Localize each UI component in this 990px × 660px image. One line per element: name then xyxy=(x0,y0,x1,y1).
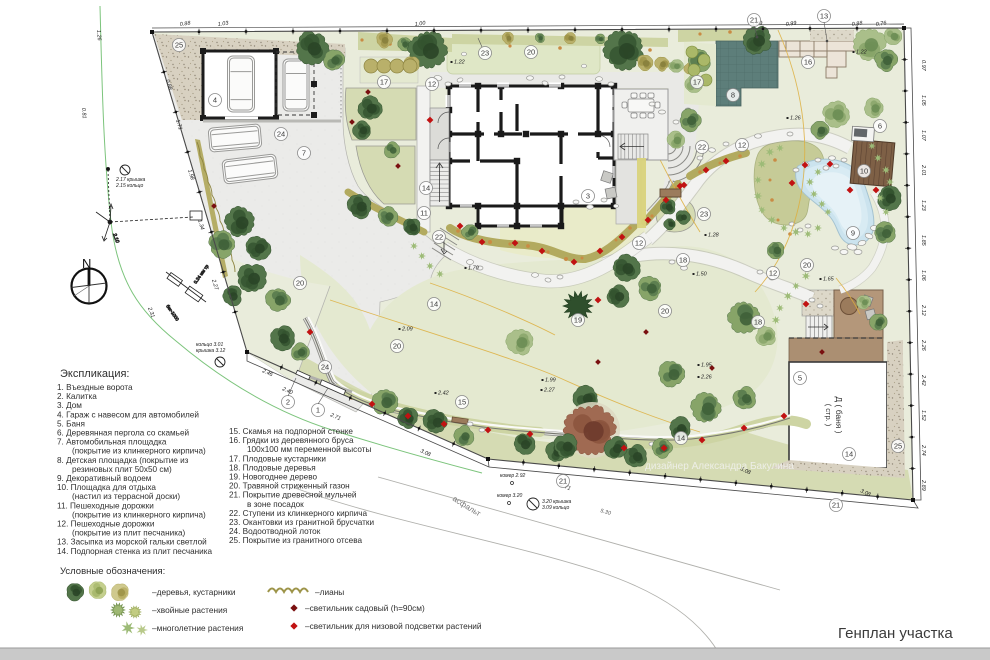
svg-text:2.42: 2.42 xyxy=(920,374,926,386)
svg-text:14: 14 xyxy=(845,450,853,459)
svg-text:15. Скамья на подпорной стенке: 15. Скамья на подпорной стенке xyxy=(229,427,353,436)
svg-text:15: 15 xyxy=(458,398,466,407)
svg-text:25. Покрытие из гранитного отс: 25. Покрытие из гранитного отсева xyxy=(229,536,362,545)
svg-text:21: 21 xyxy=(750,16,758,25)
svg-text:1. Въездные ворота: 1. Въездные ворота xyxy=(57,383,133,392)
svg-text:2.15 кольцо: 2.15 кольцо xyxy=(115,183,143,189)
svg-text:18. Плодовые деревья: 18. Плодовые деревья xyxy=(229,463,316,472)
svg-text:7. Автомобильная площадка: 7. Автомобильная площадка xyxy=(57,438,167,447)
svg-text:11. Пешеходные дорожки: 11. Пешеходные дорожки xyxy=(57,501,154,510)
svg-text:–светильник садовый (h=90см): –светильник садовый (h=90см) xyxy=(305,603,425,613)
svg-text:17: 17 xyxy=(380,78,388,87)
svg-text:1.26: 1.26 xyxy=(790,116,802,122)
svg-text:2. Калитка: 2. Калитка xyxy=(57,392,97,401)
svg-text:10: 10 xyxy=(860,167,868,176)
svg-text:Генплан участка: Генплан участка xyxy=(838,625,953,642)
svg-text:8. Детская площадка (покрытие: 8. Детская площадка (покрытие из xyxy=(57,456,189,465)
svg-text:2.89: 2.89 xyxy=(920,479,926,491)
svg-text:24. Водоотводной лоток: 24. Водоотводной лоток xyxy=(229,527,321,536)
svg-text:1.65: 1.65 xyxy=(823,277,835,283)
svg-text:в зоне посадок: в зоне посадок xyxy=(247,500,304,509)
svg-text:1.05: 1.05 xyxy=(920,95,926,107)
svg-text:–лианы: –лианы xyxy=(315,587,344,597)
svg-text:Условные обозначения:: Условные обозначения: xyxy=(60,566,165,577)
svg-text:2.09: 2.09 xyxy=(401,327,413,333)
svg-text:14: 14 xyxy=(430,300,438,309)
svg-text:3. Дом: 3. Дом xyxy=(57,401,82,410)
svg-text:21: 21 xyxy=(559,477,567,486)
svg-text:(настил из террасной доски): (настил из террасной доски) xyxy=(72,492,180,501)
svg-text:1.23: 1.23 xyxy=(920,200,926,212)
svg-text:17: 17 xyxy=(693,78,701,87)
svg-text:крышка 3.12: крышка 3.12 xyxy=(196,348,225,354)
svg-text:0.81: 0.81 xyxy=(80,108,87,119)
svg-text:9. Декоративный водоем: 9. Декоративный водоем xyxy=(57,474,152,483)
svg-text:(покрытие из клинкерного кирпи: (покрытие из клинкерного кирпича) xyxy=(72,510,206,519)
svg-text:20: 20 xyxy=(661,307,669,316)
svg-text:1.22: 1.22 xyxy=(856,50,867,56)
svg-text:( стр. ): ( стр. ) xyxy=(824,404,833,427)
svg-text:2: 2 xyxy=(286,398,290,407)
svg-text:23: 23 xyxy=(481,49,489,58)
svg-text:–многолетние растения: –многолетние растения xyxy=(152,623,243,633)
svg-text:1.07: 1.07 xyxy=(920,130,926,142)
svg-text:(покрытие из плит песчаника): (покрытие из плит песчаника) xyxy=(72,529,186,538)
svg-text:20: 20 xyxy=(296,279,304,288)
svg-text:19. Новогоднее дерево: 19. Новогоднее дерево xyxy=(229,473,317,482)
svg-text:2.26: 2.26 xyxy=(700,375,713,381)
svg-text:2.27: 2.27 xyxy=(543,388,556,394)
svg-text:20: 20 xyxy=(527,48,535,57)
svg-text:1.95: 1.95 xyxy=(701,363,713,369)
svg-text:1.99: 1.99 xyxy=(545,378,556,384)
svg-text:12: 12 xyxy=(769,269,777,278)
svg-text:12: 12 xyxy=(428,80,436,89)
svg-text:18: 18 xyxy=(679,256,687,265)
svg-text:1.70: 1.70 xyxy=(468,266,480,272)
svg-text:2.01: 2.01 xyxy=(920,164,926,176)
svg-text:24: 24 xyxy=(321,363,329,372)
svg-text:22: 22 xyxy=(698,143,706,152)
svg-text:100х100 мм переменной высоты: 100х100 мм переменной высоты xyxy=(247,445,371,454)
svg-text:1.50: 1.50 xyxy=(696,272,708,278)
svg-text:18: 18 xyxy=(754,318,762,327)
svg-text:Экспликация:: Экспликация: xyxy=(60,368,130,380)
svg-text:1.85: 1.85 xyxy=(920,235,926,247)
svg-text:Д ( баня ): Д ( баня ) xyxy=(834,396,844,433)
svg-text:2.26: 2.26 xyxy=(920,339,926,352)
svg-text:5. Баня: 5. Баня xyxy=(57,419,85,428)
svg-text:1.26: 1.26 xyxy=(95,30,102,42)
svg-text:22. Ступени из клинкерного кир: 22. Ступени из клинкерного кирпича xyxy=(229,509,367,518)
svg-text:21: 21 xyxy=(832,501,840,510)
svg-text:23: 23 xyxy=(700,210,708,219)
svg-text:13. Засыпка из морской гальки: 13. Засыпка из морской гальки светлой xyxy=(57,538,207,547)
svg-text:1.06: 1.06 xyxy=(920,270,926,282)
svg-text:7: 7 xyxy=(302,149,306,158)
svg-text:20: 20 xyxy=(393,342,401,351)
svg-text:22: 22 xyxy=(435,233,443,242)
svg-text:5: 5 xyxy=(798,374,802,383)
svg-text:6: 6 xyxy=(878,122,882,131)
svg-text:10. Площадка для отдыха: 10. Площадка для отдыха xyxy=(57,483,156,492)
svg-text:3.09 кольцо: 3.09 кольцо xyxy=(542,505,569,511)
svg-text:25: 25 xyxy=(894,442,902,451)
svg-text:16: 16 xyxy=(804,58,812,67)
svg-text:2.12: 2.12 xyxy=(920,304,926,316)
svg-text:0.97: 0.97 xyxy=(920,60,926,72)
svg-text:дизайнер Александра Бакулина: дизайнер Александра Бакулина xyxy=(645,461,794,472)
svg-text:13: 13 xyxy=(820,12,828,21)
svg-text:1.22: 1.22 xyxy=(454,60,465,66)
svg-text:14. Подпорная стенка из плит п: 14. Подпорная стенка из плит песчаника xyxy=(57,547,213,556)
svg-text:4. Гараж с навесом для автомоб: 4. Гараж с навесом для автомобилей xyxy=(57,410,199,419)
svg-text:3: 3 xyxy=(586,192,590,201)
svg-text:12. Пешеходные дорожки: 12. Пешеходные дорожки xyxy=(57,520,154,529)
svg-text:17. Плодовые кустарники: 17. Плодовые кустарники xyxy=(229,454,326,463)
svg-text:8: 8 xyxy=(731,91,735,100)
svg-text:(покрытие из клинкерного кирпи: (покрытие из клинкерного кирпича) xyxy=(72,447,206,456)
svg-text:14: 14 xyxy=(677,434,685,443)
svg-text:24: 24 xyxy=(277,130,285,139)
svg-text:25: 25 xyxy=(175,41,183,50)
svg-text:6. Деревянная пергола со скамь: 6. Деревянная пергола со скамьей xyxy=(57,429,189,438)
svg-text:резиновых плит 50х50 см): резиновых плит 50х50 см) xyxy=(72,465,172,474)
svg-text:12: 12 xyxy=(635,239,643,248)
svg-text:14: 14 xyxy=(422,184,430,193)
svg-text:2.42: 2.42 xyxy=(437,391,449,397)
svg-text:4: 4 xyxy=(213,96,217,105)
svg-text:комер 2.92: комер 2.92 xyxy=(500,473,525,479)
svg-text:21. Покрытие древесной мульчей: 21. Покрытие древесной мульчей xyxy=(229,491,357,500)
svg-text:–хвойные растения: –хвойные растения xyxy=(152,605,227,615)
svg-text:1: 1 xyxy=(316,406,320,415)
svg-text:20: 20 xyxy=(803,261,811,270)
svg-text:16. Грядки из деревянного брус: 16. Грядки из деревянного бруса xyxy=(229,436,354,445)
svg-text:9: 9 xyxy=(851,229,855,238)
svg-text:2.74: 2.74 xyxy=(920,444,926,456)
svg-text:19: 19 xyxy=(574,316,582,325)
svg-text:комер 3.20: комер 3.20 xyxy=(497,493,522,499)
svg-text:23. Окантовки из гранитной бру: 23. Окантовки из гранитной брусчатки xyxy=(229,518,374,527)
svg-text:1.52: 1.52 xyxy=(920,410,926,421)
svg-text:11: 11 xyxy=(420,209,428,218)
svg-text:12: 12 xyxy=(738,141,746,150)
svg-text:1.28: 1.28 xyxy=(708,233,720,239)
svg-text:–деревья, кустарники: –деревья, кустарники xyxy=(152,587,236,597)
svg-text:–светильник для низовой подсве: –светильник для низовой подсветки растен… xyxy=(305,621,482,631)
svg-text:20. Травяной стриженный газон: 20. Травяной стриженный газон xyxy=(229,482,350,491)
